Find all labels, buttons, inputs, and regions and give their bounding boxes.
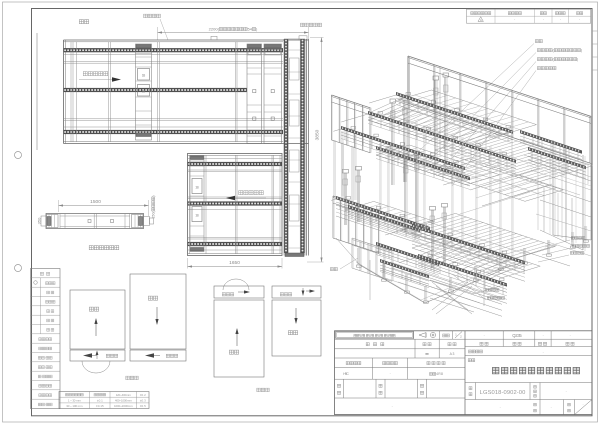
svg-text:·: · [583, 403, 584, 407]
svg-text:): ) [152, 195, 156, 196]
svg-text:±0.5: ±0.5 [140, 404, 146, 408]
svg-text:1500: 1500 [90, 199, 101, 205]
svg-text:350: 350 [37, 217, 42, 224]
svg-text:150(: 150( [152, 211, 156, 219]
svg-text:·: · [45, 365, 46, 369]
svg-text:1650: 1650 [229, 260, 240, 266]
svg-text:±0.15: ±0.15 [96, 404, 104, 408]
svg-text:1 ~ 30 mm: 1 ~ 30 mm [68, 399, 81, 403]
svg-text:·: · [543, 18, 544, 22]
svg-text:1B: 1B [195, 214, 199, 218]
svg-text:±0.3: ±0.3 [140, 399, 146, 403]
svg-text:·: · [391, 405, 392, 409]
svg-text:3850: 3850 [315, 129, 321, 140]
svg-text:mm: mm [425, 352, 429, 356]
svg-text:·: · [41, 375, 42, 379]
svg-text:400~1000mm: 400~1000mm [115, 399, 132, 403]
svg-text:1B: 1B [142, 74, 146, 78]
svg-text:·: · [389, 372, 390, 376]
svg-text:·: · [514, 18, 515, 22]
svg-text:±0.2: ±0.2 [140, 393, 146, 397]
svg-text:A 3: A 3 [450, 352, 455, 356]
svg-text:A: A [480, 18, 482, 22]
svg-text:HRC: HRC [343, 372, 349, 376]
svg-text:·: · [560, 18, 561, 22]
svg-text:·: · [550, 406, 551, 410]
svg-text:120~400mm: 120~400mm [116, 393, 132, 397]
svg-text:4R8: 4R8 [436, 372, 443, 376]
svg-text:30 ~ 100 mm: 30 ~ 100 mm [66, 404, 83, 408]
svg-text:·: · [579, 18, 580, 22]
svg-text:·: · [565, 390, 566, 394]
svg-text:·: · [499, 406, 500, 410]
svg-text:·: · [542, 351, 543, 355]
svg-text:·: · [542, 334, 543, 338]
svg-text:·: · [45, 403, 46, 407]
svg-text:1000~2000mm: 1000~2000mm [114, 404, 133, 408]
svg-text:±0.1: ±0.1 [97, 399, 103, 403]
svg-text:LGS018-0902-00: LGS018-0902-00 [480, 390, 526, 396]
svg-text:Q235: Q235 [512, 333, 522, 338]
svg-text:·: · [483, 334, 484, 338]
svg-text:2200(: 2200( [209, 27, 220, 32]
svg-text:·: · [45, 356, 46, 360]
svg-text:1B: 1B [195, 186, 199, 190]
svg-text:54: 54 [247, 27, 252, 32]
svg-text:1B: 1B [142, 90, 146, 94]
svg-text:·: · [569, 334, 570, 338]
